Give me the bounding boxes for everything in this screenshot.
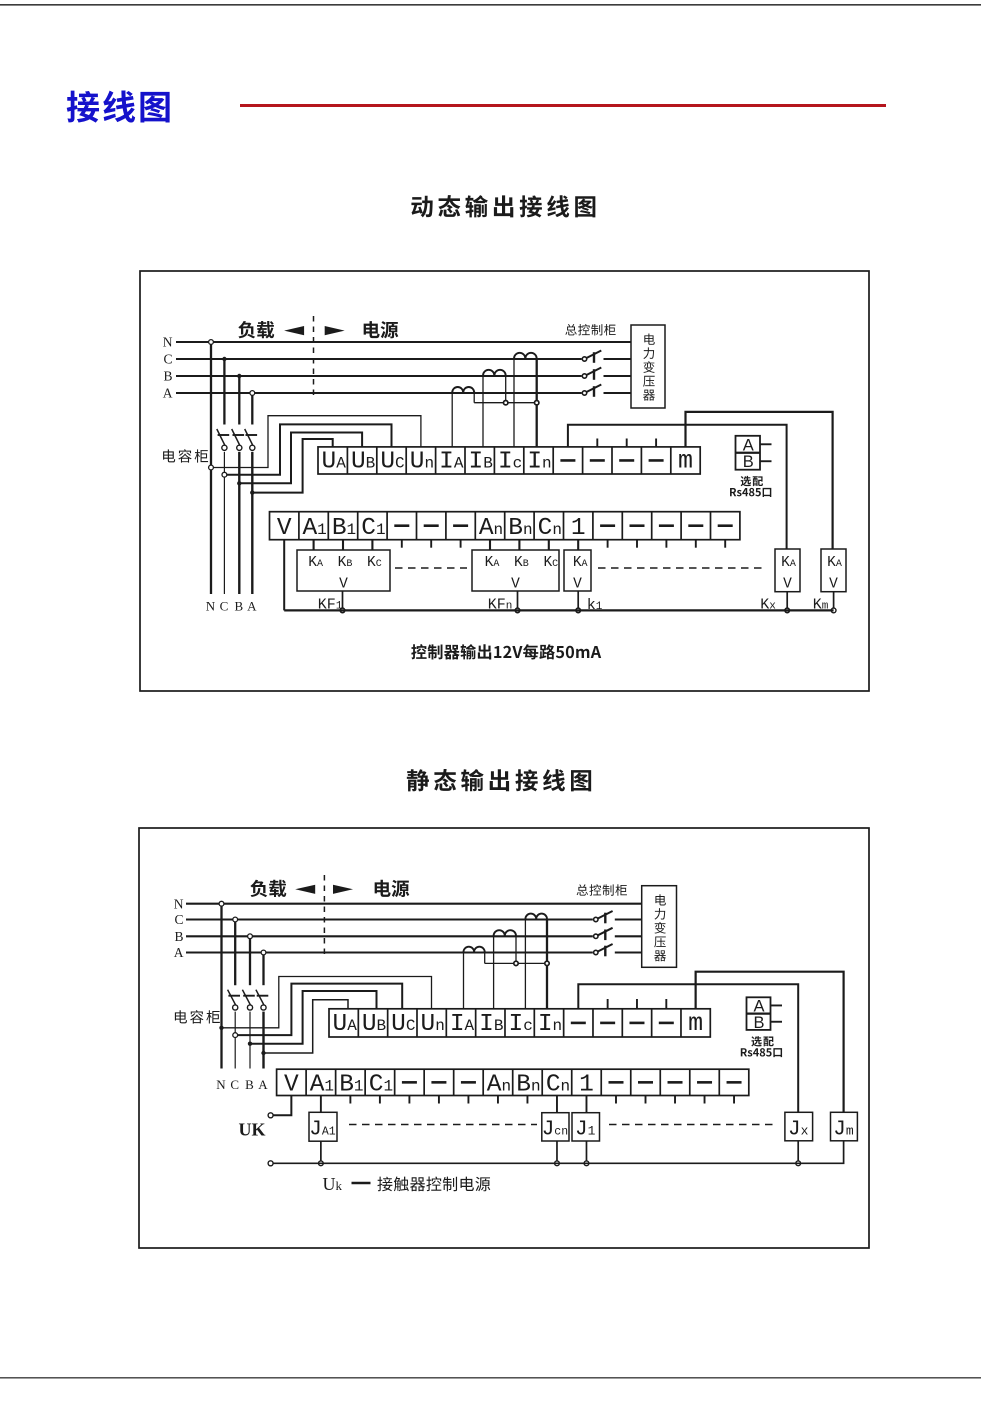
svg-text:N: N: [206, 599, 216, 614]
svg-text:1: 1: [571, 515, 586, 542]
svg-text:N: N: [163, 335, 173, 350]
svg-text:V: V: [783, 577, 792, 593]
svg-text:V: V: [339, 577, 348, 593]
svg-text:Uk: Uk: [323, 1174, 343, 1194]
svg-text:V: V: [511, 577, 520, 593]
svg-text:N: N: [174, 896, 184, 911]
svg-text:m: m: [688, 1009, 703, 1038]
svg-text:A: A: [743, 436, 754, 454]
svg-text:A: A: [258, 1077, 268, 1092]
svg-text:UK: UK: [239, 1120, 266, 1140]
svg-text:V: V: [277, 515, 292, 542]
svg-text:C: C: [220, 599, 229, 614]
svg-text:B: B: [174, 929, 183, 944]
svg-text:A: A: [753, 997, 764, 1015]
svg-text:V: V: [284, 1072, 299, 1099]
svg-text:B: B: [753, 1014, 764, 1032]
svg-text:B: B: [743, 453, 754, 471]
svg-text:N: N: [216, 1077, 226, 1092]
svg-text:A: A: [163, 386, 173, 401]
svg-text:C: C: [174, 912, 183, 927]
svg-text:m: m: [678, 447, 693, 476]
svg-text:V: V: [573, 577, 582, 593]
svg-text:B: B: [245, 1077, 254, 1092]
svg-text:B: B: [163, 369, 172, 384]
svg-text:V: V: [829, 577, 838, 593]
svg-text:B: B: [234, 599, 243, 614]
svg-text:C: C: [163, 352, 172, 367]
svg-text:1: 1: [579, 1072, 594, 1099]
svg-text:A: A: [247, 599, 257, 614]
svg-text:A: A: [174, 945, 184, 960]
svg-text:C: C: [230, 1077, 239, 1092]
